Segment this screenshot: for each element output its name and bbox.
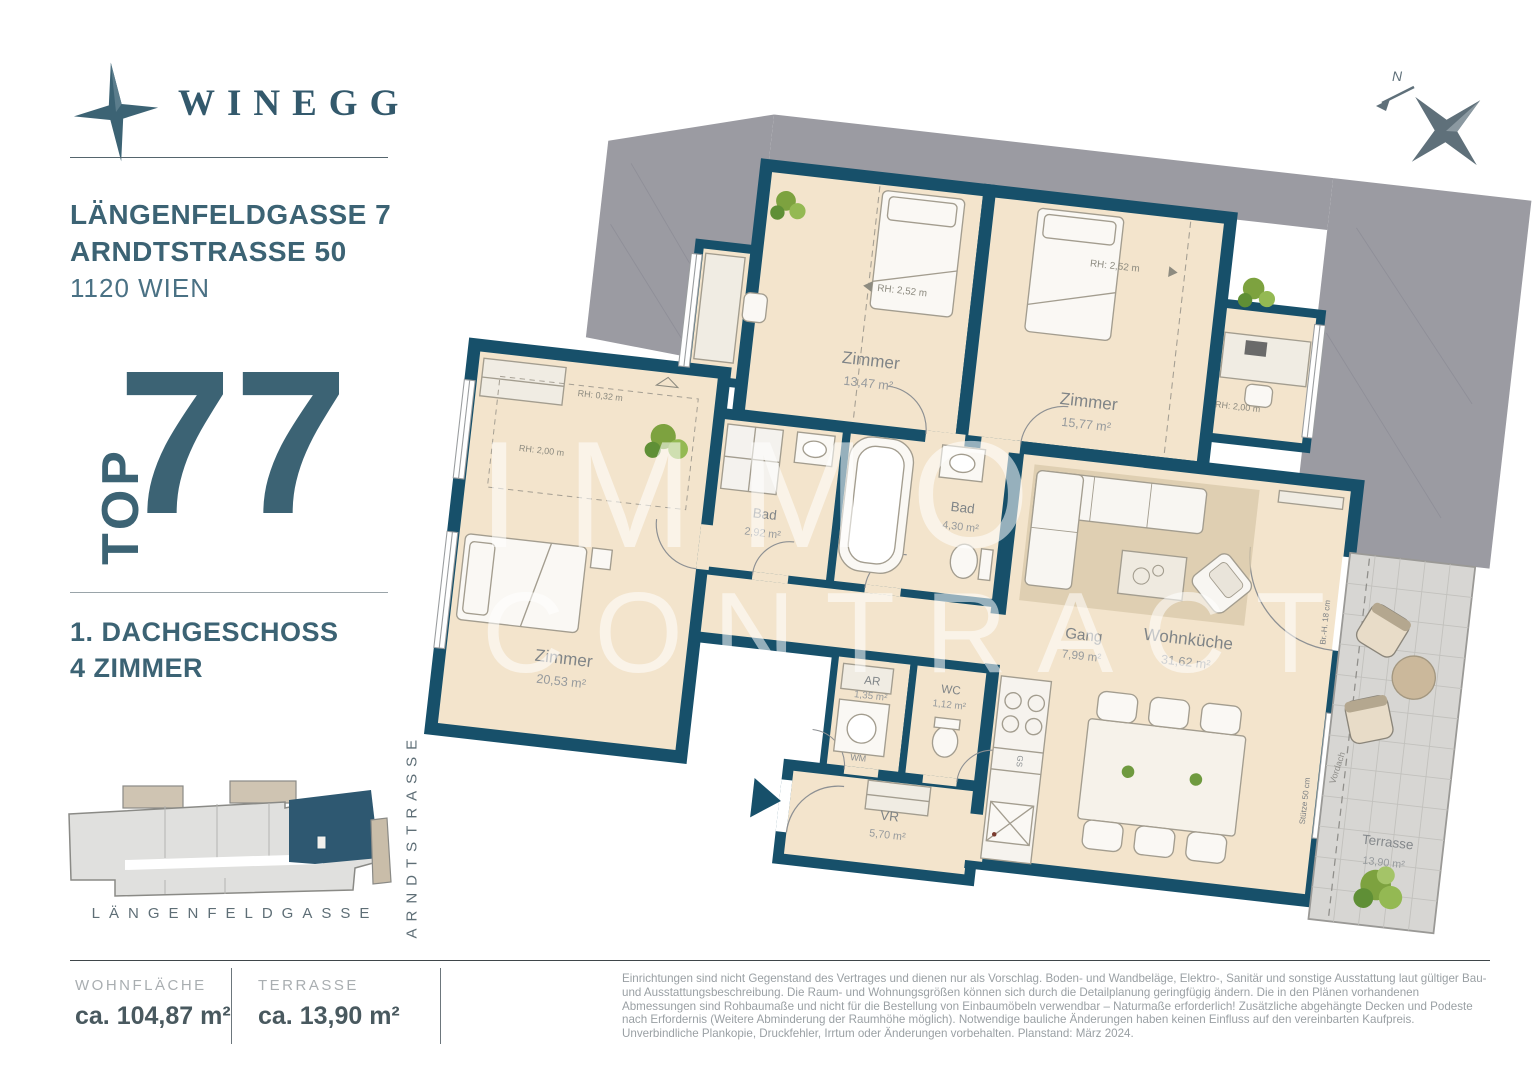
site-plan-drawing: [55, 762, 405, 912]
top-number: 77: [118, 340, 350, 545]
street-label-right: ARNDTSTRASSE: [404, 749, 421, 939]
metric-label: TERRASSE: [258, 977, 428, 994]
floor-level: 1. DACHGESCHOSS: [70, 614, 339, 650]
nightstand: [590, 548, 612, 570]
site-highlighted-unit: [289, 790, 379, 864]
north-indicator: N: [1358, 55, 1498, 180]
metric-label: WOHNFLÄCHE: [75, 977, 245, 994]
terrace-chair: [1344, 694, 1395, 745]
room-count: 4 ZIMMER: [70, 650, 339, 686]
coffee-table: [1118, 550, 1187, 600]
chair: [1133, 825, 1176, 858]
brand-header: WINEGG: [70, 62, 400, 157]
site-roof-bump: [123, 786, 183, 808]
floor-info: 1. DACHGESCHOSS 4 ZIMMER: [70, 614, 339, 686]
toilet-tank: [978, 549, 993, 581]
floorplan-page: { "brand": { "name": "WINEGG" }, "header…: [0, 0, 1536, 1087]
divider-bottom: [70, 960, 1490, 961]
toilet-tank: [934, 717, 960, 730]
room-name: AR: [864, 674, 882, 689]
site-unit-door: [317, 836, 326, 849]
gs-label: GS: [1014, 755, 1024, 768]
address-line2: ARNDTSTRASSE 50: [70, 233, 391, 270]
wm-label: WM: [850, 752, 867, 764]
winegg-star-icon: [70, 62, 162, 162]
street-label-bottom: LÄNGENFELDGASSE: [60, 905, 410, 922]
north-arrow: N: [1376, 68, 1414, 111]
desk: [1220, 332, 1311, 386]
metric-value: ca. 13,90 m²: [258, 1002, 428, 1031]
site-plan: [55, 762, 405, 912]
metric-value: ca. 104,87 m²: [75, 1002, 245, 1031]
living-zone: [1019, 464, 1266, 626]
address-block: LÄNGENFELDGASSE 7 ARNDTSTRASSE 50 1120 W…: [70, 196, 391, 307]
divider-logo: [70, 157, 388, 158]
floorplan-area: RH: 2,52 m RH: 2,52 m RH: 2,00 m RH: 0,3…: [430, 168, 1500, 932]
room-name: WC: [941, 683, 962, 698]
chair: [1148, 697, 1191, 730]
site-roof-bump: [230, 781, 296, 803]
metric-terrasse: TERRASSE ca. 13,90 m²: [258, 977, 428, 1031]
room-name: Bad: [752, 505, 778, 523]
chair: [742, 292, 768, 323]
room-name: VR: [879, 808, 900, 825]
metric-wohnflaeche: WOHNFLÄCHE ca. 104,87 m²: [75, 977, 245, 1031]
compass-icon: N: [1358, 55, 1498, 180]
north-letter: N: [1392, 68, 1403, 84]
chair: [1081, 819, 1124, 852]
address-city: 1120 WIEN: [70, 270, 391, 307]
room-name: Bad: [950, 499, 976, 517]
divider-unit: [70, 592, 388, 593]
brand-wordmark: WINEGG: [178, 82, 410, 125]
chair: [1200, 702, 1243, 735]
chair: [1096, 691, 1139, 724]
chair: [1185, 831, 1228, 864]
disclaimer-text: Einrichtungen sind nicht Gegenstand des …: [622, 972, 1494, 1041]
floorplan-svg: RH: 2,52 m RH: 2,52 m RH: 2,00 m RH: 0,3…: [430, 168, 1500, 932]
divider-vertical: [440, 968, 441, 1044]
dining-table: [1077, 718, 1246, 836]
address-line1: LÄNGENFELDGASSE 7: [70, 196, 391, 233]
monitor: [1244, 340, 1267, 357]
site-right-wing: [371, 818, 391, 884]
